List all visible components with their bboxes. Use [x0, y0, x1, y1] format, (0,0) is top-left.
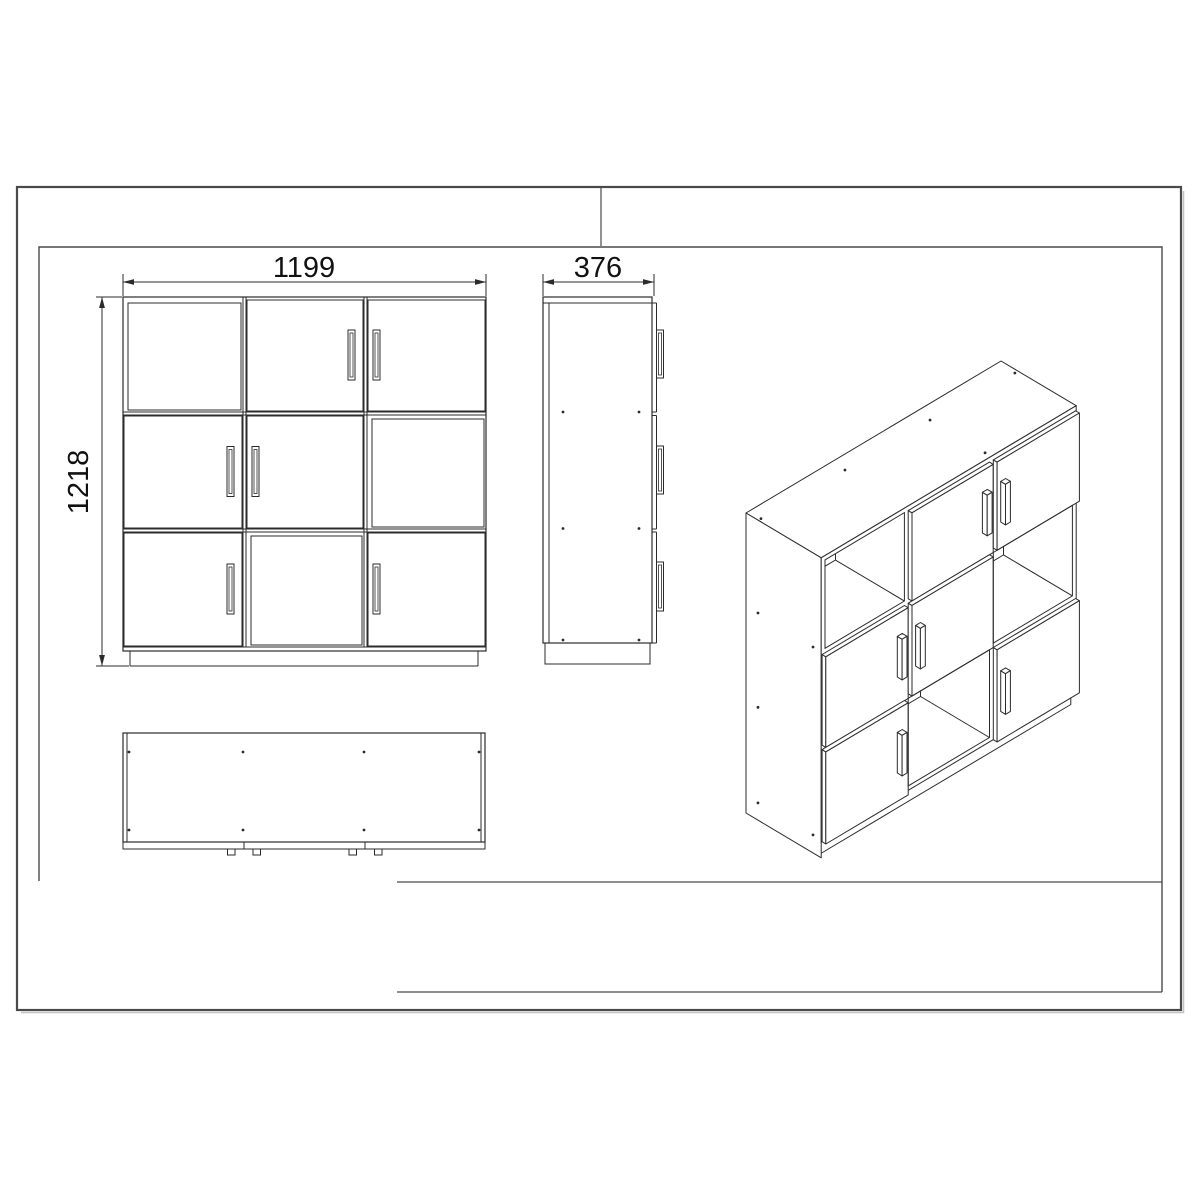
dimension-labels: 1199 376 1218 — [63, 252, 622, 514]
technical-drawing-canvas: 1199 376 1218 — [0, 0, 1200, 1200]
drawing-sheet: 1199 376 1218 — [0, 0, 1200, 1200]
isometric-view-drawing — [746, 361, 1079, 858]
top-view-drawing — [123, 733, 485, 855]
front-view-drawing — [96, 274, 486, 666]
side-view-drawing — [543, 274, 664, 664]
front-width-dimension-label: 1199 — [273, 252, 335, 284]
front-height-dimension-label: 1218 — [63, 450, 95, 515]
side-depth-dimension-label: 376 — [574, 252, 622, 284]
